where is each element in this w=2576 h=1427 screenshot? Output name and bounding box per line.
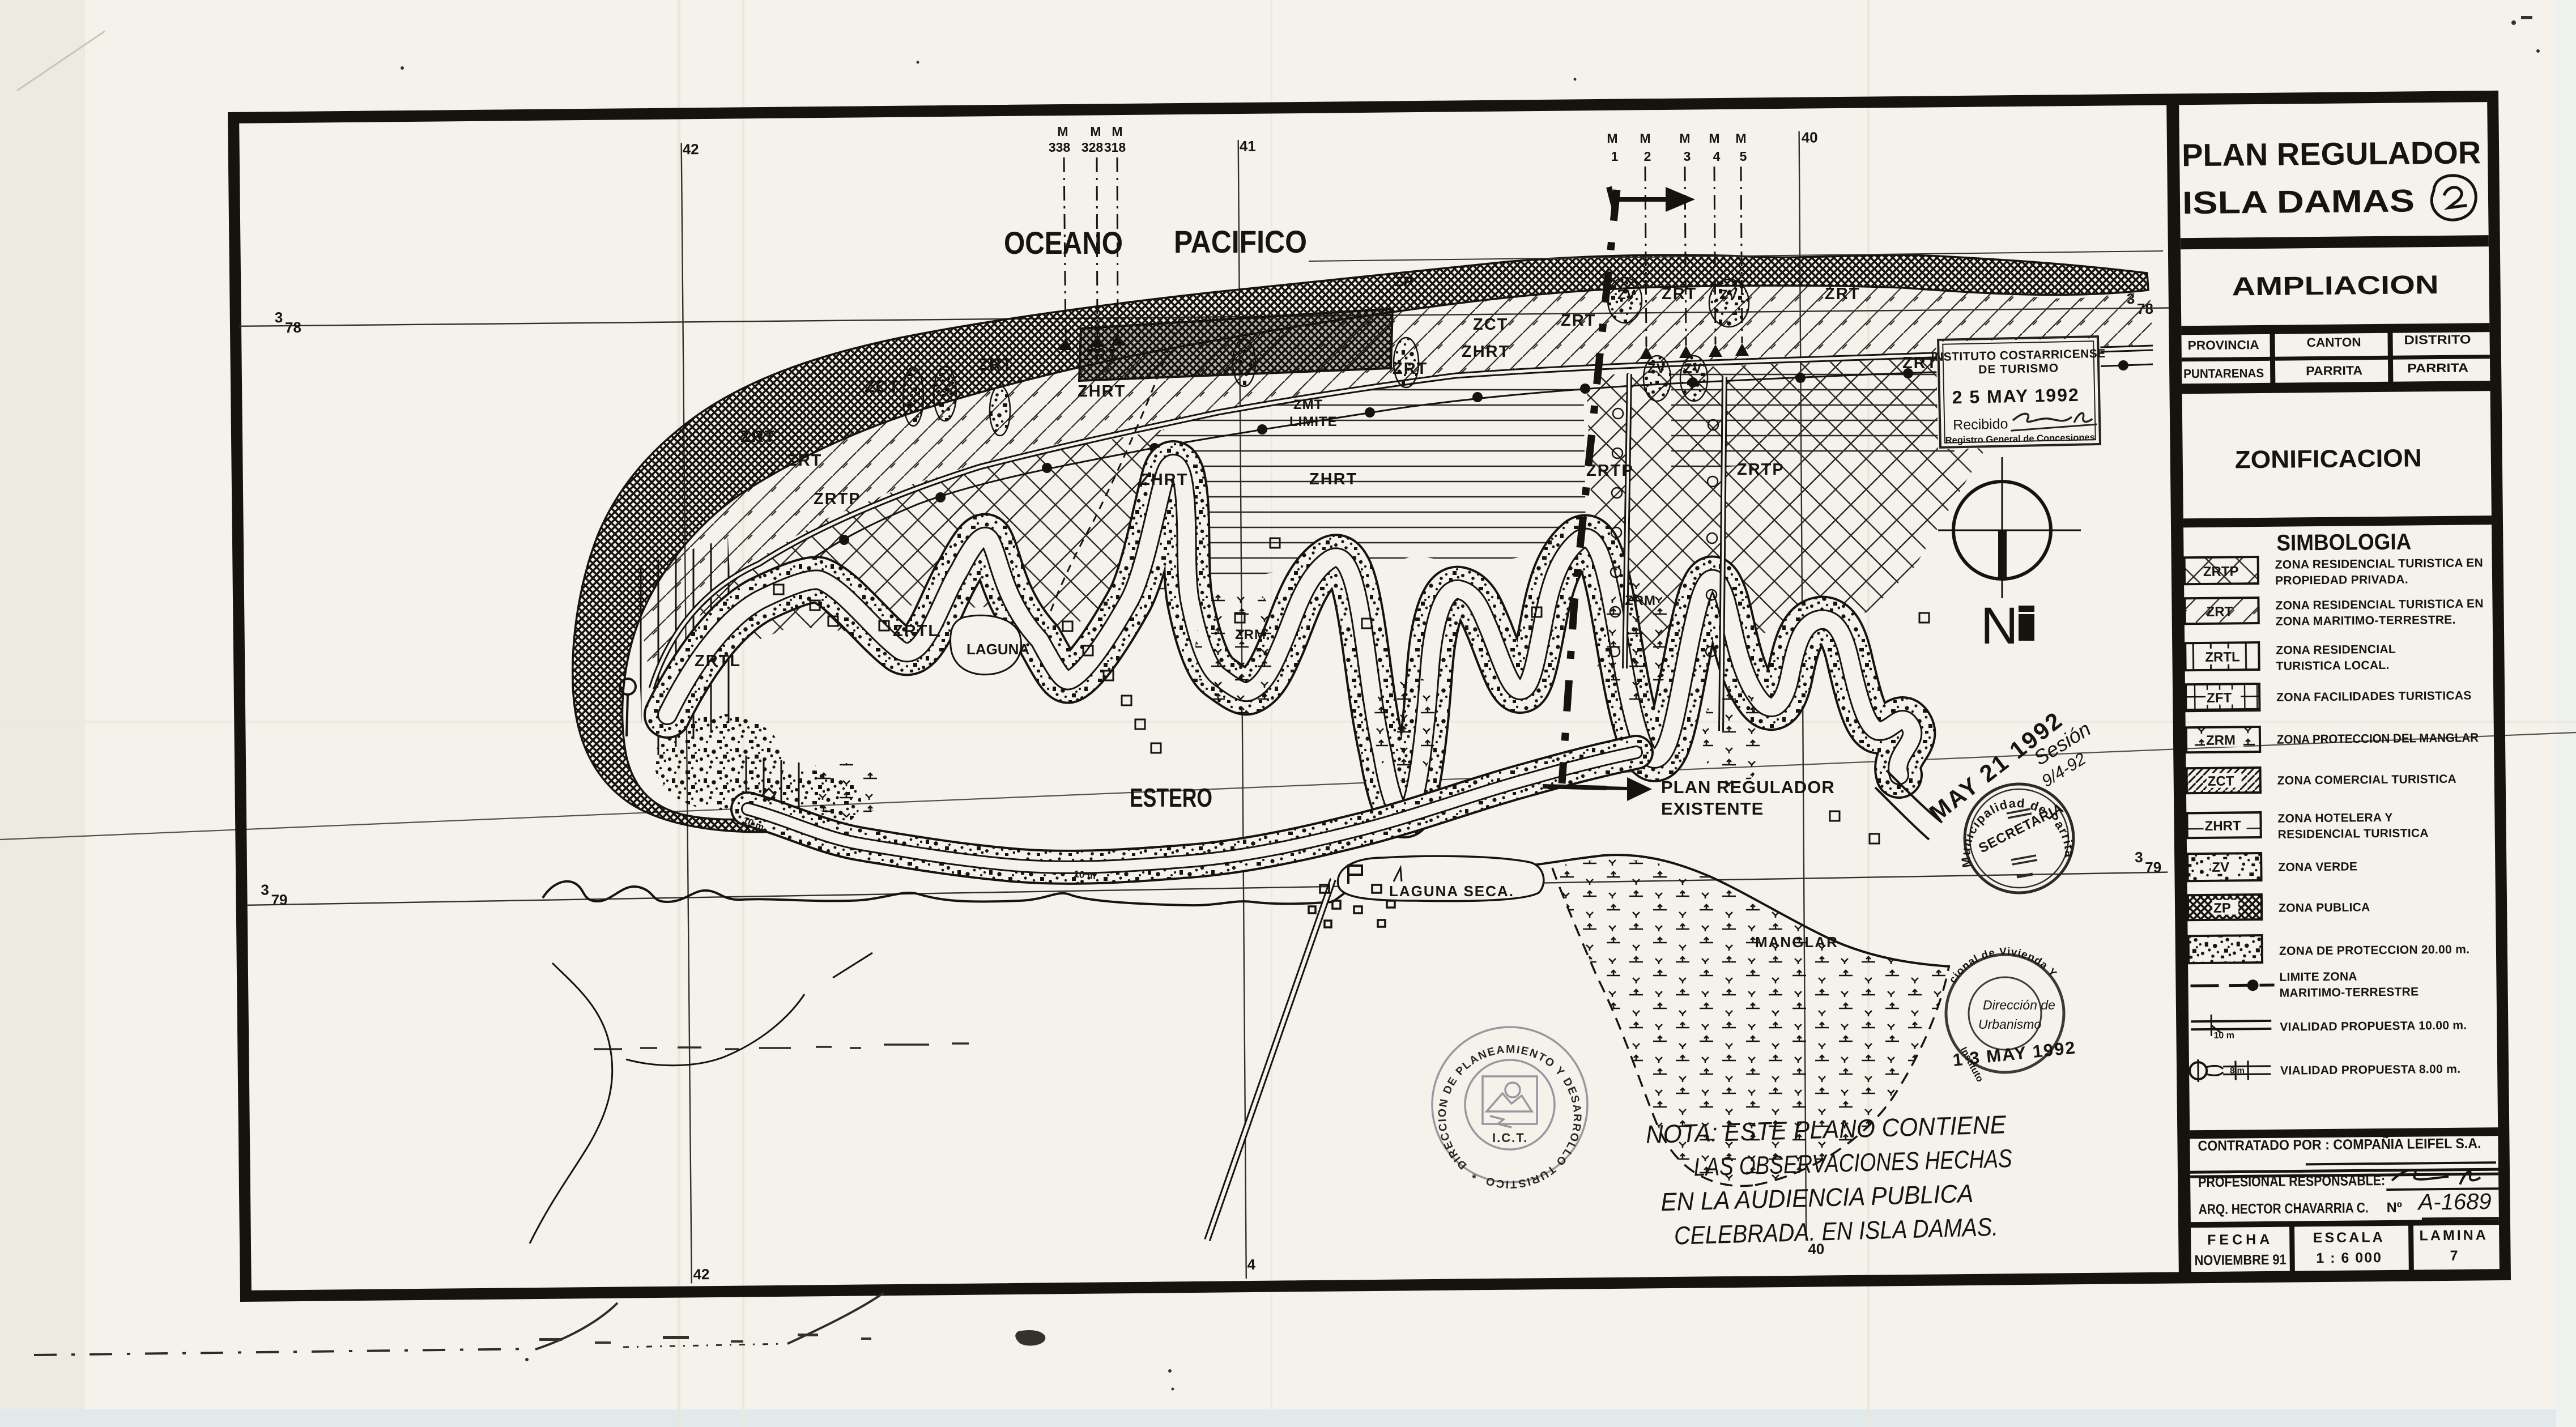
svg-text:ZRT: ZRT [2206, 604, 2233, 619]
svg-text:ZHRT: ZHRT [1462, 343, 1510, 361]
svg-text:MANGLAR: MANGLAR [1755, 934, 1838, 951]
svg-text:10 m: 10 m [1074, 868, 1097, 881]
svg-text:SIMBOLOGIA: SIMBOLOGIA [2276, 529, 2411, 555]
svg-text:I.C.T.: I.C.T. [1492, 1131, 1528, 1145]
svg-text:ZP: ZP [2213, 901, 2231, 916]
svg-text:VIALIDAD PROPUESTA 8.00 m.: VIALIDAD PROPUESTA 8.00 m. [2280, 1063, 2460, 1077]
svg-text:ZRT: ZRT [1083, 346, 1118, 364]
svg-text:N: N [1981, 597, 2018, 655]
svg-text:TURISTICA LOCAL.: TURISTICA LOCAL. [2276, 659, 2390, 673]
svg-text:M: M [1607, 131, 1617, 146]
svg-text:ZRM: ZRM [2206, 732, 2236, 748]
svg-text:ZONA HOTELERA Y: ZONA HOTELERA Y [2277, 811, 2392, 825]
svg-text:1: 1 [1611, 149, 1619, 164]
svg-text:ZCT: ZCT [865, 378, 900, 396]
svg-text:ZRT: ZRT [787, 451, 822, 470]
svg-text:ZONA DE PROTECCION 20.00 m.: ZONA DE PROTECCION 20.00 m. [2279, 943, 2470, 958]
svg-text:PARRITA: PARRITA [2407, 360, 2468, 375]
svg-text:42: 42 [693, 1266, 709, 1283]
svg-text:ZV: ZV [1647, 361, 1666, 376]
svg-text:PROPIEDAD PRIVADA.: PROPIEDAD PRIVADA. [2275, 573, 2408, 587]
svg-text:ZRT: ZRT [1561, 312, 1596, 330]
svg-text:ESTERO: ESTERO [1130, 783, 1212, 812]
svg-text:ZV: ZV [1684, 361, 1702, 376]
svg-text:ZONA PROTECCION DEL MANGLAR: ZONA PROTECCION DEL MANGLAR [2277, 730, 2479, 746]
svg-text:ZONA PUBLICA: ZONA PUBLICA [2279, 901, 2370, 915]
svg-text:LIMITE: LIMITE [1289, 414, 1338, 429]
svg-text:ZCT: ZCT [1473, 316, 1508, 334]
svg-text:Dirección de: Dirección de [1983, 998, 2055, 1012]
svg-text:79: 79 [2145, 859, 2161, 876]
svg-text:LAMINA: LAMINA [2419, 1227, 2488, 1243]
svg-text:Urbanismo: Urbanismo [1978, 1017, 2041, 1032]
svg-text:3: 3 [261, 881, 269, 898]
svg-text:3: 3 [275, 309, 283, 326]
svg-text:ZRT: ZRT [1393, 360, 1428, 378]
svg-text:8 m: 8 m [2230, 1066, 2245, 1075]
svg-text:ZRM: ZRM [1235, 627, 1266, 642]
svg-text:ZONA RESIDENCIAL TURISTICA EN: ZONA RESIDENCIAL TURISTICA EN [2275, 597, 2484, 612]
svg-text:ZP: ZP [1395, 274, 1413, 289]
svg-text:10 m: 10 m [2213, 1031, 2234, 1041]
svg-text:338: 338 [1049, 140, 1071, 155]
svg-text:ZV: ZV [2212, 860, 2229, 875]
svg-text:ZRT: ZRT [978, 356, 1013, 374]
svg-text:ZRTP: ZRTP [1586, 462, 1634, 480]
svg-text:LIMITE ZONA: LIMITE ZONA [2279, 970, 2357, 983]
svg-text:PACIFICO: PACIFICO [1174, 224, 1307, 259]
svg-text:EXISTENTE: EXISTENTE [1661, 799, 1764, 819]
svg-text:4: 4 [1247, 1256, 1255, 1273]
svg-text:2: 2 [1644, 149, 1651, 164]
svg-text:ZONA RESIDENCIAL: ZONA RESIDENCIAL [2276, 643, 2396, 657]
svg-text:ZV: ZV [1617, 287, 1636, 303]
svg-text:1 : 6 000: 1 : 6 000 [2316, 1250, 2382, 1266]
svg-text:CANTON: CANTON [2307, 335, 2361, 350]
svg-text:ZRTP: ZRTP [1737, 461, 1785, 479]
svg-text:DISTRITO: DISTRITO [2404, 332, 2471, 347]
svg-text:M: M [1709, 131, 1719, 146]
svg-text:ZONA VERDE: ZONA VERDE [2278, 860, 2357, 874]
svg-text:VIALIDAD PROPUESTA 10.00 m.: VIALIDAD PROPUESTA 10.00 m. [2280, 1019, 2467, 1034]
svg-text:2 5 MAY 1992: 2 5 MAY 1992 [1952, 385, 2080, 408]
svg-text:AMPLIACION: AMPLIACION [2232, 270, 2439, 301]
svg-text:318: 318 [1104, 140, 1126, 155]
svg-text:A-1689: A-1689 [2417, 1189, 2491, 1215]
svg-text:PLAN REGULADOR: PLAN REGULADOR [2182, 134, 2481, 173]
svg-text:ZONA RESIDENCIAL TURISTICA EN: ZONA RESIDENCIAL TURISTICA EN [2275, 556, 2484, 571]
svg-text:78: 78 [285, 319, 301, 336]
svg-text:M: M [1640, 131, 1650, 146]
svg-text:7: 7 [2450, 1248, 2458, 1264]
svg-text:3: 3 [1684, 149, 1691, 164]
svg-text:ZMT: ZMT [1293, 397, 1323, 412]
svg-text:4: 4 [1713, 149, 1721, 164]
svg-text:ZHRT: ZHRT [1140, 471, 1188, 489]
svg-text:42: 42 [683, 140, 699, 157]
svg-text:ZCT: ZCT [2208, 773, 2234, 789]
svg-text:ZRT: ZRT [1662, 285, 1697, 303]
svg-text:ESCALA: ESCALA [2313, 1229, 2385, 1246]
svg-text:79: 79 [271, 891, 287, 908]
svg-text:M: M [1090, 124, 1101, 139]
svg-text:PARRITA: PARRITA [2306, 363, 2362, 378]
svg-text:5: 5 [1740, 149, 1747, 164]
svg-text:ZONA MARITIMO-TERRESTRE.: ZONA MARITIMO-TERRESTRE. [2276, 614, 2456, 628]
svg-text:ZRTP: ZRTP [2203, 564, 2239, 580]
svg-text:ARQ. HECTOR CHAVARRIA C.: ARQ. HECTOR CHAVARRIA C. [2199, 1200, 2369, 1217]
svg-text:M: M [1112, 124, 1122, 139]
svg-text:PROVINCIA: PROVINCIA [2188, 338, 2259, 352]
svg-text:41: 41 [1240, 138, 1256, 155]
svg-text:ZV: ZV [1719, 287, 1738, 303]
svg-text:ZRT: ZRT [740, 428, 776, 446]
svg-text:ZONA COMERCIAL TURISTICA: ZONA COMERCIAL TURISTICA [2277, 773, 2457, 787]
svg-text:M: M [1679, 131, 1690, 146]
svg-text:MARITIMO-TERRESTRE: MARITIMO-TERRESTRE [2280, 985, 2419, 999]
svg-text:PUNTARENAS: PUNTARENAS [2183, 366, 2264, 381]
svg-text:ZRTL: ZRTL [2205, 649, 2240, 665]
svg-text:M: M [1057, 124, 1068, 139]
svg-text:NOVIEMBRE 91: NOVIEMBRE 91 [2194, 1252, 2286, 1269]
svg-text:M: M [1735, 131, 1746, 146]
svg-text:ZRTP: ZRTP [814, 490, 861, 508]
svg-text:3: 3 [2135, 849, 2143, 866]
svg-text:LAGUNA SECA.: LAGUNA SECA. [1389, 883, 1514, 900]
svg-text:ZHRT: ZHRT [2204, 818, 2241, 834]
svg-text:PLAN REGULADOR: PLAN REGULADOR [1661, 777, 1835, 797]
svg-text:ZRT: ZRT [1825, 285, 1860, 303]
svg-text:Recibido: Recibido [1953, 416, 2008, 433]
svg-text:ZRTL: ZRTL [695, 652, 741, 670]
svg-text:PROFESIONAL RESPONSABLE:: PROFESIONAL RESPONSABLE: [2198, 1173, 2385, 1190]
svg-text:ZONIFICACION: ZONIFICACION [2235, 444, 2422, 474]
svg-text:ZONA FACILIDADES TURISTICAS: ZONA FACILIDADES TURISTICAS [2276, 689, 2472, 704]
svg-text:ZRM: ZRM [1625, 593, 1656, 608]
svg-text:CONTRATADO POR : COMPAÑIA LEIF: CONTRATADO POR : COMPAÑIA LEIFEL S.A. [2198, 1134, 2481, 1154]
svg-text:328: 328 [1082, 140, 1104, 155]
svg-text:DE TURISMO: DE TURISMO [1978, 361, 2059, 376]
svg-text:ZFT: ZFT [2207, 691, 2232, 706]
svg-text:OCEANO: OCEANO [1004, 225, 1123, 261]
svg-text:Nº: Nº [2387, 1200, 2402, 1216]
svg-text:ZHRT: ZHRT [1078, 382, 1126, 401]
svg-text:RESIDENCIAL TURISTICA: RESIDENCIAL TURISTICA [2278, 827, 2429, 841]
svg-text:40: 40 [1802, 129, 1818, 146]
svg-text:ZHRT: ZHRT [1309, 470, 1357, 488]
svg-text:ZRTL: ZRTL [893, 622, 939, 640]
svg-text:ISLA DAMAS: ISLA DAMAS [2182, 182, 2415, 220]
svg-text:LAGUNA: LAGUNA [966, 641, 1029, 658]
svg-text:FECHA: FECHA [2207, 1232, 2273, 1248]
